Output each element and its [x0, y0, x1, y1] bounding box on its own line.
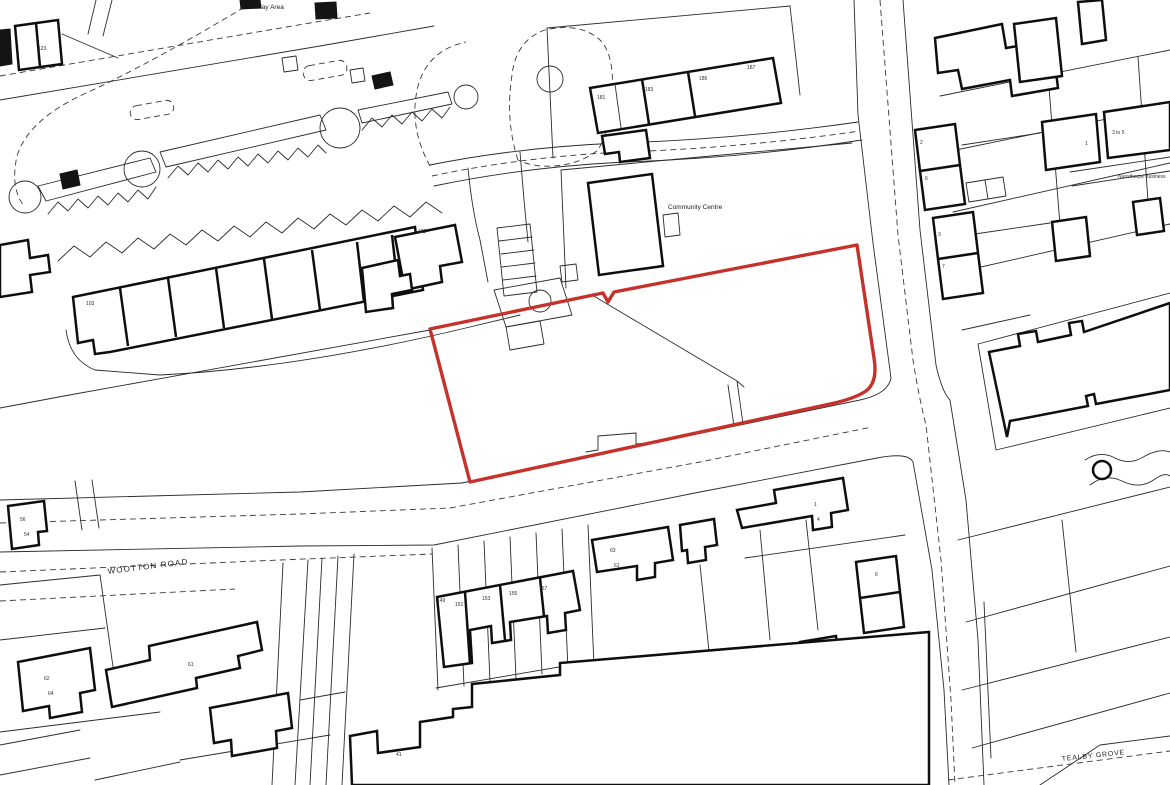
site-footpath: [592, 295, 744, 426]
embankment-zigzag: [48, 187, 156, 214]
house-number: 6: [875, 572, 878, 578]
business-label: Nunsthorpe Business: [1118, 174, 1166, 180]
house-number: 3: [938, 232, 941, 238]
garage-court: [499, 237, 536, 280]
play-circle: [454, 85, 478, 109]
house: [592, 527, 673, 580]
play-feature: [38, 158, 156, 201]
semi-detached-pair: [856, 556, 904, 633]
garage-court: [560, 264, 578, 282]
building: [240, 0, 337, 19]
house-number: 61: [188, 662, 194, 668]
road-edge: [0, 483, 462, 500]
parking-bay: [129, 99, 175, 120]
house-number: 153: [482, 596, 491, 602]
house-number: 61: [614, 563, 620, 569]
tealby-grove-label: TEALBY GROVE: [1061, 749, 1125, 763]
building: [18, 648, 95, 718]
road-edge: [0, 26, 434, 100]
house-number: 181: [597, 95, 606, 101]
building: [1042, 114, 1100, 170]
house-number: 64: [48, 691, 54, 697]
road-centerline: [0, 589, 235, 601]
community-centre-building: [588, 174, 663, 275]
play-area-label: Play Area: [256, 4, 284, 11]
semi-detached-pair: [933, 212, 983, 299]
parcel-line: [663, 213, 680, 237]
road-centerline: [0, 554, 432, 572]
house-number: 63: [610, 548, 616, 554]
house: [680, 519, 717, 563]
turning-head: [415, 42, 466, 166]
small-structure: [282, 56, 365, 83]
parcel-line: [958, 487, 1170, 758]
school-building: [989, 303, 1170, 437]
site-boundary-outline: [430, 245, 875, 482]
landscape-wave: [1085, 451, 1170, 462]
house-number: 41: [396, 752, 402, 758]
building: [0, 240, 50, 297]
road-edge: [468, 168, 488, 282]
parcel-line: [962, 57, 1150, 330]
house-number: 123: [38, 46, 47, 52]
house-number: 7: [942, 264, 945, 270]
house-number: 149: [437, 598, 446, 604]
building: [1014, 18, 1062, 82]
parcel-line: [0, 730, 90, 775]
house-number: 4: [817, 517, 820, 523]
house-number: 56: [20, 517, 26, 523]
site-boundary: [430, 245, 875, 482]
building: [602, 130, 650, 162]
play-feature: [160, 115, 326, 167]
community-centre-label: Community Centre: [668, 204, 723, 211]
house-number: 187: [747, 65, 756, 71]
site-location-plan: Play Area Community Centre Nunsthorpe Bu…: [0, 0, 1170, 785]
house-row: [437, 571, 580, 667]
house-number: 2: [920, 140, 923, 146]
house-number: 54: [24, 532, 30, 538]
parcel-line: [62, 0, 118, 58]
parking-bay: [302, 59, 348, 81]
house-number: 62: [44, 676, 50, 682]
garage-strip: [966, 177, 1006, 202]
building: [1078, 0, 1106, 44]
house-number: 155: [509, 591, 518, 597]
play-circle: [9, 181, 41, 213]
play-circle: [320, 108, 360, 148]
road-edge: [520, 152, 528, 242]
building: [106, 622, 262, 707]
house-number: 103: [86, 301, 95, 307]
road-edge: [272, 554, 354, 785]
road-edge: [962, 637, 1170, 785]
house-number: 6: [925, 176, 928, 182]
buildings-layer: [0, 0, 1170, 785]
garage-court: [506, 321, 544, 350]
road-centerline: [948, 751, 1170, 780]
building: [210, 693, 292, 756]
plan-svg: Play Area Community Centre Nunsthorpe Bu…: [0, 0, 1170, 785]
house: [737, 478, 848, 530]
house-number: 122: [418, 229, 427, 235]
wootton-road-label: WOOTTON ROAD: [107, 557, 189, 576]
house-number: 3 to 5: [1112, 130, 1125, 136]
house-number: 185: [699, 76, 708, 82]
parcel-line: [0, 330, 430, 408]
play-structure: [60, 72, 393, 189]
embankment-zigzag: [362, 107, 450, 130]
landscape-circle: [1093, 461, 1111, 479]
house-number: 1: [1085, 141, 1088, 147]
house-number: 151: [455, 602, 464, 608]
building: [8, 501, 47, 549]
building: [0, 29, 12, 66]
house-number: 183: [645, 87, 654, 93]
road-edge: [462, 0, 891, 483]
house-number: 157: [539, 586, 548, 592]
house-number: 1: [814, 502, 817, 508]
semi-detached-pair: [915, 124, 965, 210]
garage-court: [497, 224, 537, 296]
building: [1052, 198, 1164, 261]
